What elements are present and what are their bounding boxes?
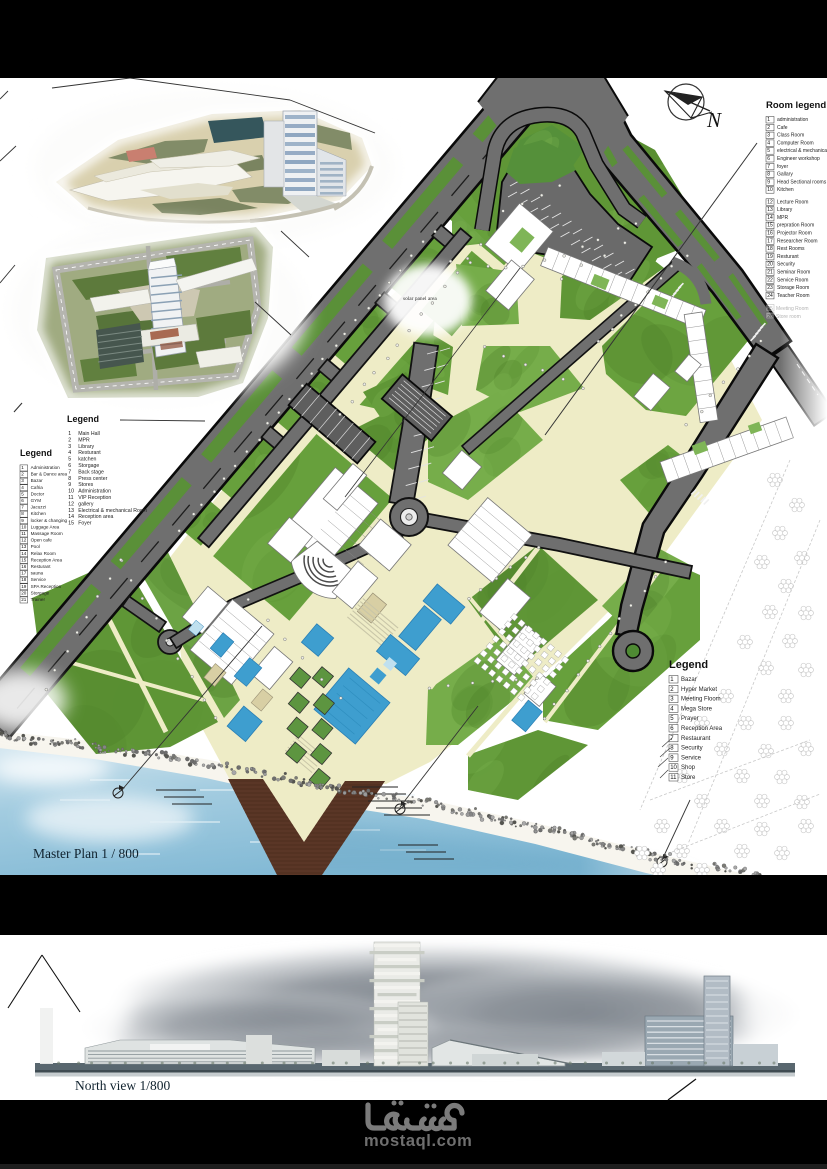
svg-text:Rest Rooms: Rest Rooms xyxy=(777,246,805,252)
svg-text:gallery: gallery xyxy=(78,501,94,507)
svg-text:Restaurant: Restaurant xyxy=(681,736,711,742)
svg-text:Storgage: Storgage xyxy=(78,463,99,469)
svg-text:Library: Library xyxy=(78,444,94,450)
svg-text:11: 11 xyxy=(21,531,26,536)
svg-text:MPR: MPR xyxy=(777,215,789,221)
svg-text:1: 1 xyxy=(21,465,24,470)
svg-text:Projector Room: Projector Room xyxy=(777,231,812,237)
svg-text:Bar & Dance area: Bar & Dance area xyxy=(31,472,68,477)
svg-text:Kitchen: Kitchen xyxy=(777,187,794,193)
svg-text:Press center: Press center xyxy=(78,476,107,482)
svg-text:13: 13 xyxy=(68,508,74,514)
svg-text:Reception Area: Reception Area xyxy=(31,557,63,562)
svg-text:mostaql.com: mostaql.com xyxy=(364,1132,472,1150)
svg-text:Luggage Area: Luggage Area xyxy=(31,524,60,529)
svg-text:Researcher Room: Researcher Room xyxy=(777,238,818,244)
svg-text:foyer: foyer xyxy=(777,164,788,170)
svg-text:Reception area: Reception area xyxy=(78,514,113,520)
svg-text:19: 19 xyxy=(767,254,773,260)
svg-text:Head Sectional rooms: Head Sectional rooms xyxy=(777,179,827,185)
svg-text:Legend: Legend xyxy=(20,448,52,458)
svg-text:Seminar Room: Seminar Room xyxy=(777,270,810,276)
svg-text:Store room: Store room xyxy=(776,314,801,320)
svg-text:Jacuzzi: Jacuzzi xyxy=(31,505,46,510)
svg-text:25: 25 xyxy=(767,306,773,312)
svg-text:MPR: MPR xyxy=(78,437,90,443)
svg-text:8: 8 xyxy=(68,476,71,482)
svg-text:Lecture Room: Lecture Room xyxy=(777,199,808,205)
svg-text:17: 17 xyxy=(767,238,773,244)
svg-text:21: 21 xyxy=(21,597,27,602)
svg-text:6: 6 xyxy=(767,156,770,162)
svg-text:Relax Room: Relax Room xyxy=(31,551,56,556)
svg-text:North view 1/800: North view 1/800 xyxy=(75,1078,170,1093)
svg-text:11: 11 xyxy=(68,495,73,501)
svg-text:Electrical & mechanical Room: Electrical & mechanical Room xyxy=(78,508,147,514)
svg-text:katchen: katchen xyxy=(78,457,96,463)
svg-text:Service: Service xyxy=(31,577,47,582)
svg-text:14: 14 xyxy=(767,215,773,221)
svg-text:5: 5 xyxy=(21,491,24,496)
svg-text:Main Hall: Main Hall xyxy=(78,431,100,437)
svg-text:Security: Security xyxy=(681,746,703,752)
svg-text:26: 26 xyxy=(767,314,773,320)
svg-text:Library: Library xyxy=(777,207,793,213)
svg-text:Hyper Market: Hyper Market xyxy=(681,687,717,693)
svg-text:3: 3 xyxy=(767,133,770,139)
svg-text:1: 1 xyxy=(68,431,71,437)
svg-text:12: 12 xyxy=(68,501,74,507)
svg-text:8: 8 xyxy=(21,511,24,516)
svg-text:Foyer: Foyer xyxy=(78,521,92,527)
svg-text:14: 14 xyxy=(68,514,74,520)
svg-text:21: 21 xyxy=(767,270,773,276)
svg-text:15: 15 xyxy=(68,521,74,527)
svg-text:Engineer workshop: Engineer workshop xyxy=(777,156,820,162)
svg-text:Gallary: Gallary xyxy=(777,172,793,178)
svg-text:Administration: Administration xyxy=(78,489,111,495)
svg-text:Massage Room: Massage Room xyxy=(31,531,63,536)
svg-text:23: 23 xyxy=(767,285,773,291)
svg-text:22: 22 xyxy=(767,277,773,283)
svg-text:Teacher Room: Teacher Room xyxy=(777,293,810,299)
svg-text:19: 19 xyxy=(21,584,27,589)
svg-text:prepration Room: prepration Room xyxy=(777,223,814,229)
svg-text:administration: administration xyxy=(777,117,808,123)
svg-text:20: 20 xyxy=(767,262,773,268)
svg-text:Bazar: Bazar xyxy=(31,478,43,483)
svg-text:17: 17 xyxy=(21,571,27,576)
svg-text:Resturant: Resturant xyxy=(78,450,101,456)
svg-text:Storage Room: Storage Room xyxy=(777,285,809,291)
svg-text:12: 12 xyxy=(21,538,27,543)
svg-text:7: 7 xyxy=(21,505,24,510)
svg-text:VIP Reception: VIP Reception xyxy=(78,495,111,501)
svg-text:Open cafe: Open cafe xyxy=(31,538,53,543)
svg-text:Resturant: Resturant xyxy=(31,564,52,569)
svg-text:18: 18 xyxy=(767,246,773,252)
svg-text:9: 9 xyxy=(68,482,71,488)
svg-text:2: 2 xyxy=(767,125,770,131)
svg-text:Stores: Stores xyxy=(78,482,93,488)
svg-text:5: 5 xyxy=(68,457,71,463)
svg-text:9: 9 xyxy=(21,518,24,523)
svg-text:Store: Store xyxy=(681,775,696,781)
svg-text:Master Plan 1 / 800: Master Plan 1 / 800 xyxy=(33,846,139,861)
svg-text:4: 4 xyxy=(68,450,71,456)
svg-text:electrical & mechanical Room: electrical & mechanical Room xyxy=(777,148,827,154)
svg-text:10: 10 xyxy=(21,524,27,529)
svg-text:3: 3 xyxy=(21,478,24,483)
svg-text:Room legend: Room legend xyxy=(766,100,826,111)
svg-text:14: 14 xyxy=(21,551,27,556)
svg-text:18: 18 xyxy=(21,577,27,582)
svg-text:12: 12 xyxy=(767,199,773,205)
svg-text:2: 2 xyxy=(68,437,71,443)
svg-text:Storgage: Storgage xyxy=(31,590,50,595)
svg-text:16: 16 xyxy=(767,231,773,237)
svg-text:Meeting Room: Meeting Room xyxy=(776,306,809,312)
svg-text:6: 6 xyxy=(21,498,24,503)
svg-text:Administration: Administration xyxy=(31,465,61,470)
svg-text:locker & changing: locker & changing xyxy=(31,518,68,523)
svg-text:5: 5 xyxy=(767,148,770,154)
svg-text:Legend: Legend xyxy=(669,659,708,671)
svg-text:Legend: Legend xyxy=(67,414,99,424)
svg-text:15: 15 xyxy=(767,223,773,229)
svg-text:solar panel area: solar panel area xyxy=(403,296,437,302)
svg-text:10: 10 xyxy=(767,187,773,193)
svg-text:N: N xyxy=(706,108,722,132)
svg-text:10: 10 xyxy=(670,765,677,771)
svg-text:Doctor: Doctor xyxy=(31,491,45,496)
svg-text:Class Room: Class Room xyxy=(777,133,804,139)
svg-text:7: 7 xyxy=(68,469,71,475)
svg-text:9: 9 xyxy=(767,179,770,185)
svg-text:3: 3 xyxy=(68,444,71,450)
svg-text:GYM: GYM xyxy=(31,498,42,503)
svg-text:SPA Reception: SPA Reception xyxy=(31,584,62,589)
svg-text:4: 4 xyxy=(767,140,770,146)
svg-text:Meeting Floom: Meeting Floom xyxy=(681,697,721,703)
svg-text:Mega Store: Mega Store xyxy=(681,706,713,712)
svg-text:11: 11 xyxy=(670,775,677,781)
svg-text:4: 4 xyxy=(21,485,24,490)
svg-text:Resturant: Resturant xyxy=(777,254,799,260)
svg-text:2: 2 xyxy=(21,472,24,477)
svg-text:8: 8 xyxy=(767,172,770,178)
svg-text:6: 6 xyxy=(68,463,71,469)
svg-text:7: 7 xyxy=(767,164,770,170)
svg-text:Security: Security xyxy=(777,262,796,268)
svg-text:Reception Area: Reception Area xyxy=(681,726,723,732)
svg-text:Service Room: Service Room xyxy=(777,277,808,283)
svg-text:sauna: sauna xyxy=(31,571,44,576)
svg-text:Computer Room: Computer Room xyxy=(777,140,814,146)
svg-text:13: 13 xyxy=(767,207,773,213)
svg-text:24: 24 xyxy=(767,293,773,299)
svg-text:20: 20 xyxy=(21,590,27,595)
svg-text:Service: Service xyxy=(681,755,702,761)
svg-text:Trainer: Trainer xyxy=(31,597,46,602)
svg-text:Prayer: Prayer xyxy=(681,716,699,722)
svg-text:Back stage: Back stage xyxy=(78,469,104,475)
svg-text:15: 15 xyxy=(21,557,27,562)
svg-text:Kitchen: Kitchen xyxy=(31,511,47,516)
svg-text:13: 13 xyxy=(21,544,27,549)
svg-text:Shop: Shop xyxy=(681,765,696,771)
svg-text:1: 1 xyxy=(767,117,770,123)
svg-text:Bazar: Bazar xyxy=(681,677,697,683)
svg-text:16: 16 xyxy=(21,564,27,569)
svg-text:Cafe: Cafe xyxy=(777,125,788,131)
svg-text:Cafria: Cafria xyxy=(31,485,44,490)
svg-text:Pool: Pool xyxy=(31,544,40,549)
svg-text:10: 10 xyxy=(68,489,74,495)
